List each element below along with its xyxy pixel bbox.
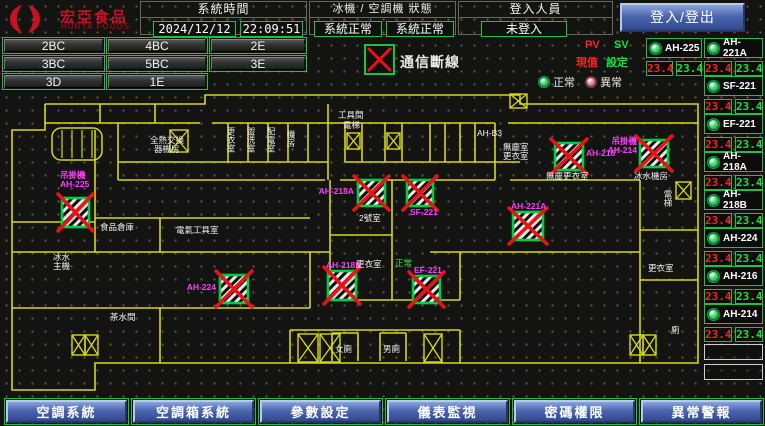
unit-pv-value: 23.4 xyxy=(704,99,732,114)
abnormal-lamp-icon xyxy=(585,76,597,88)
unit-sv-value: 23.4 xyxy=(735,289,763,304)
floor-button-cell: 5BC xyxy=(106,55,208,72)
unit-sv-value: 23.4 xyxy=(676,61,703,76)
nav-cell: 密碼權限 xyxy=(512,398,637,425)
room-label: 廁 xyxy=(671,325,680,335)
nav-cell: 異常警報 xyxy=(639,398,764,425)
room-label: 男廁 xyxy=(383,344,401,354)
system-date-value: 2024/12/12 xyxy=(153,21,236,37)
equipment-label: AH-225 xyxy=(60,179,90,189)
unit-pv-value: 23.4 xyxy=(704,251,732,266)
nav-cell: 空調系統 xyxy=(4,398,129,425)
equipment-label: AH-224 xyxy=(187,282,217,292)
pv-cn-header: 現值 xyxy=(576,54,598,70)
nav-button-空調系統[interactable]: 空調系統 xyxy=(6,400,127,423)
comm-loss-equipment-AH-218A[interactable] xyxy=(354,176,389,210)
hmi-screen: 宏亞食品 HUNYA FOODS 系統時間 2024/12/12 22:09:5… xyxy=(0,0,765,426)
unit-name-label: EF-221 xyxy=(723,119,756,130)
floor-plan-map: 吊掛機AH-225AH-218ASF-221AH-218BEF-221AH-22… xyxy=(0,90,702,398)
pv-header: PV xyxy=(585,39,600,51)
nav-cell: 參數設定 xyxy=(258,398,383,425)
unit-pv-value: 23.4 xyxy=(704,61,732,76)
unit-pv-value: 23.4 xyxy=(704,175,732,190)
nav-button-儀表監視[interactable]: 儀表監視 xyxy=(387,400,508,423)
floor-button-cell: 3BC xyxy=(2,55,105,72)
system-time-label: 系統時間 xyxy=(141,2,306,18)
brand-name-en: HUNYA FOODS xyxy=(61,22,130,31)
floor-button-cell: 4BC xyxy=(106,37,208,54)
floor-button-3BC[interactable]: 3BC xyxy=(4,57,103,70)
room-label: 盥洗室 xyxy=(246,126,256,152)
unit-pv-value: 23.4 xyxy=(704,213,732,228)
floor-button-2BC[interactable]: 2BC xyxy=(4,39,103,52)
floor-button-3D[interactable]: 3D xyxy=(4,75,103,88)
room-label: 器機房 xyxy=(154,144,180,154)
unit-sv-value: 23.4 xyxy=(735,137,763,152)
sv-cn-header: 設定 xyxy=(606,54,628,70)
unit-sv-value: 23.4 xyxy=(735,99,763,114)
equipment-label: AH-221A xyxy=(511,201,546,211)
chiller-status-value: 系統正常 xyxy=(314,21,382,37)
room-label: 電氣工具室 xyxy=(176,225,219,235)
unit-status-lamp-icon xyxy=(649,42,662,55)
floor-button-cell: 3D xyxy=(2,73,105,90)
unit-pv-value: 23.4 xyxy=(646,61,673,76)
login-label: 登入人員 xyxy=(459,2,612,18)
legend-abnormal-label: 異常 xyxy=(600,77,622,89)
unit-button-AH-221A[interactable]: AH-221A xyxy=(704,38,763,58)
room-label: 電梯 xyxy=(663,190,673,208)
unit-button-AH-214[interactable]: AH-214 xyxy=(704,304,763,324)
floor-button-3E[interactable]: 3E xyxy=(211,57,305,70)
unit-button-SF-221[interactable]: SF-221 xyxy=(704,76,763,96)
unit-name-label: AH-218B xyxy=(723,189,762,211)
unit-pv-value: 23.4 xyxy=(704,289,732,304)
unit-button-AH-225[interactable]: AH-225 xyxy=(646,38,702,58)
legend-normal-label: 正常 xyxy=(553,77,575,89)
comm-loss-equipment-AH-221A[interactable] xyxy=(509,208,547,244)
unit-status-lamp-icon xyxy=(707,270,720,283)
floor-button-cell: 2BC xyxy=(2,37,105,54)
ahu-status-value: 系統正常 xyxy=(386,21,454,37)
empty-unit-slot xyxy=(704,364,763,380)
system-time-value: 22:09:51 xyxy=(240,21,303,37)
legend-abnormal: 異常 xyxy=(585,74,622,90)
floor-button-5BC[interactable]: 5BC xyxy=(108,57,206,70)
brand-area: 宏亞食品 HUNYA FOODS xyxy=(0,1,138,35)
unit-name-label: AH-214 xyxy=(723,309,757,320)
unit-status-lamp-icon xyxy=(707,42,720,55)
unit-name-label: AH-224 xyxy=(723,233,757,244)
login-status-value: 未登入 xyxy=(481,21,567,37)
nav-cell: 空調箱系統 xyxy=(131,398,256,425)
nav-button-異常警報[interactable]: 異常警報 xyxy=(641,400,762,423)
nav-button-密碼權限[interactable]: 密碼權限 xyxy=(514,400,635,423)
brand-logo-icon xyxy=(8,3,58,35)
nav-button-參數設定[interactable]: 參數設定 xyxy=(260,400,381,423)
room-label: 茶水間 xyxy=(110,312,136,322)
unit-sv-value: 23.4 xyxy=(735,175,763,190)
unit-sv-value: 23.4 xyxy=(735,61,763,76)
room-label: 電梯 xyxy=(343,120,361,130)
comm-loss-equipment-AH-225[interactable] xyxy=(58,194,93,231)
equipment-label: EF-221 xyxy=(414,265,442,275)
comm-loss-equipment-SF-221[interactable] xyxy=(403,176,437,210)
unit-button-EF-221[interactable]: EF-221 xyxy=(704,114,763,134)
room-label: 配電室 xyxy=(266,127,276,153)
sv-header: SV xyxy=(614,39,629,51)
machine-status-label: 冰機 / 空調機 狀態 xyxy=(310,2,455,18)
equipment-label: AH-214 xyxy=(608,145,638,155)
empty-unit-slot xyxy=(704,344,763,360)
comm-loss-legend-label: 通信斷線 xyxy=(400,52,460,72)
room-label: 食品倉庫 xyxy=(100,222,135,232)
unit-status-lamp-icon xyxy=(707,156,720,169)
floor-button-4BC[interactable]: 4BC xyxy=(108,39,206,52)
nav-button-空調箱系統[interactable]: 空調箱系統 xyxy=(133,400,254,423)
comm-loss-equipment-EF-221[interactable] xyxy=(409,272,444,307)
floor-button-cell: 1E xyxy=(106,73,208,90)
unit-status-lamp-icon xyxy=(707,80,720,93)
room-label: 工具間 xyxy=(338,110,364,120)
unit-status-lamp-icon xyxy=(707,194,720,207)
system-time-section: 系統時間 2024/12/12 22:09:51 xyxy=(140,1,307,35)
login-section: 登入人員 未登入 xyxy=(458,1,613,35)
unit-name-label: AH-225 xyxy=(665,43,699,54)
unit-name-label: AH-218A xyxy=(723,151,762,173)
comm-loss-equipment-AH-216[interactable] xyxy=(551,139,587,174)
unit-button-AH-218A[interactable]: AH-218A xyxy=(704,152,763,172)
unit-status-lamp-icon xyxy=(707,308,720,321)
room-label: 主機 xyxy=(53,261,71,271)
floor-button-cell: 3E xyxy=(209,55,307,72)
login-logout-button[interactable]: 登入/登出 xyxy=(620,3,745,32)
room-label: 冰水機房 xyxy=(634,171,668,181)
unit-status-lamp-icon xyxy=(707,118,720,131)
floor-button-cell: 2E xyxy=(209,37,307,54)
room-label: 2號室 xyxy=(359,213,381,223)
room-label: 更衣室 xyxy=(648,263,674,273)
room-label: 更衣室 xyxy=(503,151,529,161)
legend-normal: 正常 xyxy=(538,74,575,90)
room-label: 無塵更衣室 xyxy=(546,171,589,181)
floor-button-2E[interactable]: 2E xyxy=(211,39,305,52)
unit-name-label: SF-221 xyxy=(723,81,756,92)
room-label: 機房 xyxy=(286,129,296,148)
machine-status-section: 冰機 / 空調機 狀態 系統正常 系統正常 xyxy=(309,1,456,35)
equipment-label: AH-218A xyxy=(319,186,354,196)
unit-name-label: AH-221A xyxy=(723,37,762,59)
unit-button-AH-216[interactable]: AH-216 xyxy=(704,266,763,286)
floor-button-1E[interactable]: 1E xyxy=(108,75,206,88)
room-label: AH-B3 xyxy=(477,128,502,138)
comm-loss-equipment-AH-218B[interactable] xyxy=(324,267,360,304)
unit-sv-value: 23.4 xyxy=(735,327,763,342)
room-label: 更衣室 xyxy=(356,259,382,269)
room-label: 更衣室 xyxy=(226,127,236,153)
comm-loss-equipment-AH-224[interactable] xyxy=(216,271,252,307)
unit-sv-value: 23.4 xyxy=(735,213,763,228)
room-label: 正常 xyxy=(395,258,412,268)
unit-sv-value: 23.4 xyxy=(735,251,763,266)
nav-cell: 儀表監視 xyxy=(385,398,510,425)
unit-pv-value: 23.4 xyxy=(704,137,732,152)
unit-name-label: AH-216 xyxy=(723,271,757,282)
comm-loss-equipment-AH-214[interactable] xyxy=(636,136,672,171)
unit-status-lamp-icon xyxy=(707,232,720,245)
equipment-label: SF-221 xyxy=(410,207,438,217)
unit-button-AH-218B[interactable]: AH-218B xyxy=(704,190,763,210)
room-label: 女廁 xyxy=(335,344,353,354)
comm-loss-legend-icon xyxy=(364,44,395,75)
unit-pv-value: 23.4 xyxy=(704,327,732,342)
unit-button-AH-224[interactable]: AH-224 xyxy=(704,228,763,248)
normal-lamp-icon xyxy=(538,76,550,88)
